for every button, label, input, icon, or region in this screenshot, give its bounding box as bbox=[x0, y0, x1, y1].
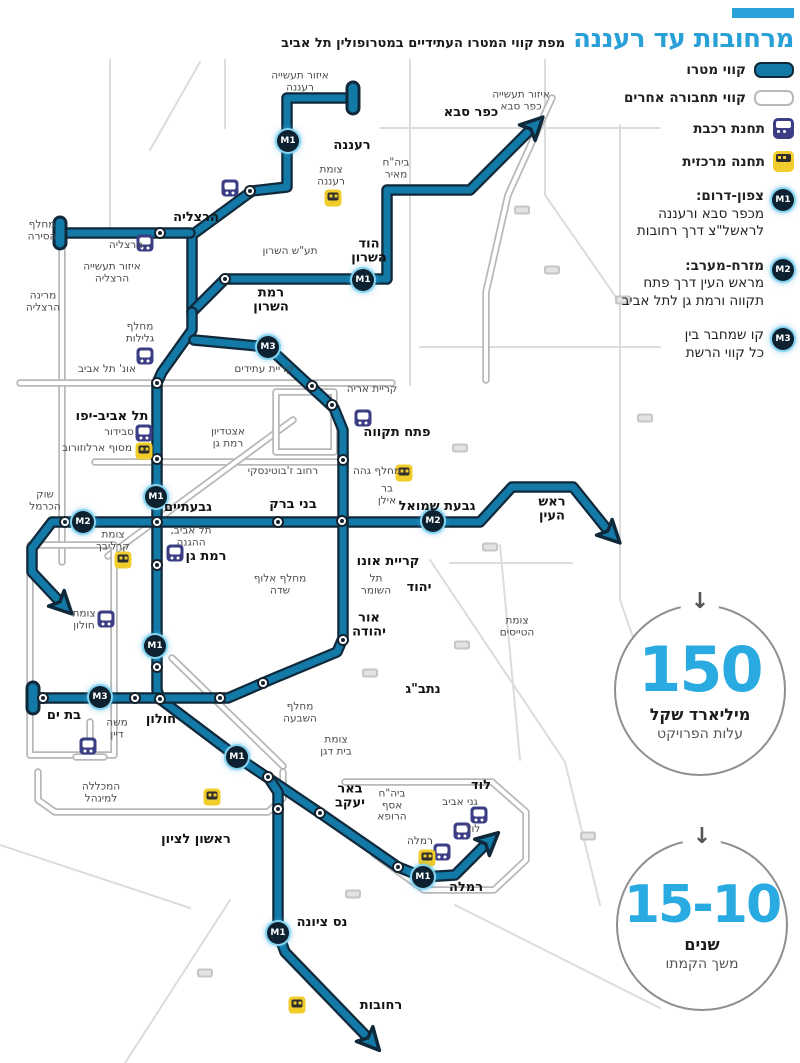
other-line-swatch bbox=[754, 90, 794, 106]
legend-row-metro: קווי מטרו bbox=[556, 62, 794, 78]
stat-duration-value: 15-10 bbox=[624, 879, 780, 931]
metro-line-swatch bbox=[754, 62, 794, 78]
stat-duration-unit: שנים bbox=[684, 935, 719, 954]
legend-train-label: תחנת רכבת bbox=[693, 121, 765, 137]
m2-badge: M2 bbox=[772, 259, 794, 281]
page-subtitle: מפת קווי המטרו העתידיים במטרופולין תל אב… bbox=[281, 36, 565, 51]
m1-desc: מכפר סבא ורעננה לראשל"צ דרך רחובות bbox=[637, 206, 764, 240]
legend-line-m3: M3 קו שמחבר בין כל קווי הרשת bbox=[556, 327, 794, 362]
accent-bar bbox=[732, 8, 794, 18]
down-arrow-icon: ↓ bbox=[683, 826, 721, 848]
m2-title: מזרח-מערב: bbox=[685, 258, 764, 274]
header: מרחובות עד רעננהמפת קווי המטרו העתידיים … bbox=[4, 24, 794, 54]
stat-duration-caption: משך הקמתו bbox=[665, 956, 738, 972]
legend-line-m2: M2 מזרח-מערב: מראש העין דרך פתח תקווה ור… bbox=[556, 258, 794, 311]
central-station-icon bbox=[773, 151, 794, 172]
stat-cost-caption: עלות הפרויקט bbox=[657, 726, 743, 742]
train-station-icon bbox=[773, 118, 794, 139]
legend-central-label: תחנה מרכזית bbox=[682, 154, 765, 170]
stat-cost-unit: מיליארד שקל bbox=[650, 705, 751, 724]
m3-badge: M3 bbox=[772, 328, 794, 350]
m3-desc: קו שמחבר בין כל קווי הרשת bbox=[685, 327, 764, 361]
m1-badge: M1 bbox=[772, 189, 794, 211]
legend-other-label: קווי תחבורה אחרים bbox=[624, 90, 746, 106]
m2-desc: מראש העין דרך פתח תקווה ורמת גן לתל אביב bbox=[622, 275, 764, 309]
legend-row-central: תחנה מרכזית bbox=[556, 151, 794, 172]
infographic-page: M1M1M1M1M1M1M1M2M2M3M3איזור תעשייה רעננה… bbox=[0, 0, 800, 1063]
stat-circle-cost: ↓ 150 מיליארד שקל עלות הפרויקט bbox=[614, 604, 786, 776]
legend-metro-lines: M1 צפון-דרום: מכפר סבא ורעננה לראשל"צ דר… bbox=[556, 188, 794, 362]
stat-circle-duration: ↓ 15-10 שנים משך הקמתו bbox=[616, 839, 788, 1011]
legend-row-train: תחנת רכבת bbox=[556, 118, 794, 139]
legend-row-other: קווי תחבורה אחרים bbox=[556, 90, 794, 106]
page-title: מרחובות עד רעננה bbox=[573, 24, 794, 54]
legend-metro-label: קווי מטרו bbox=[686, 62, 746, 78]
down-arrow-icon: ↓ bbox=[681, 591, 719, 613]
legend: קווי מטרו קווי תחבורה אחרים תחנת רכבת תח… bbox=[556, 62, 794, 379]
transit-lines bbox=[20, 88, 628, 1058]
stat-cost-value: 150 bbox=[638, 639, 761, 701]
m1-title: צפון-דרום: bbox=[696, 188, 764, 204]
legend-line-m1: M1 צפון-דרום: מכפר סבא ורעננה לראשל"צ דר… bbox=[556, 188, 794, 241]
